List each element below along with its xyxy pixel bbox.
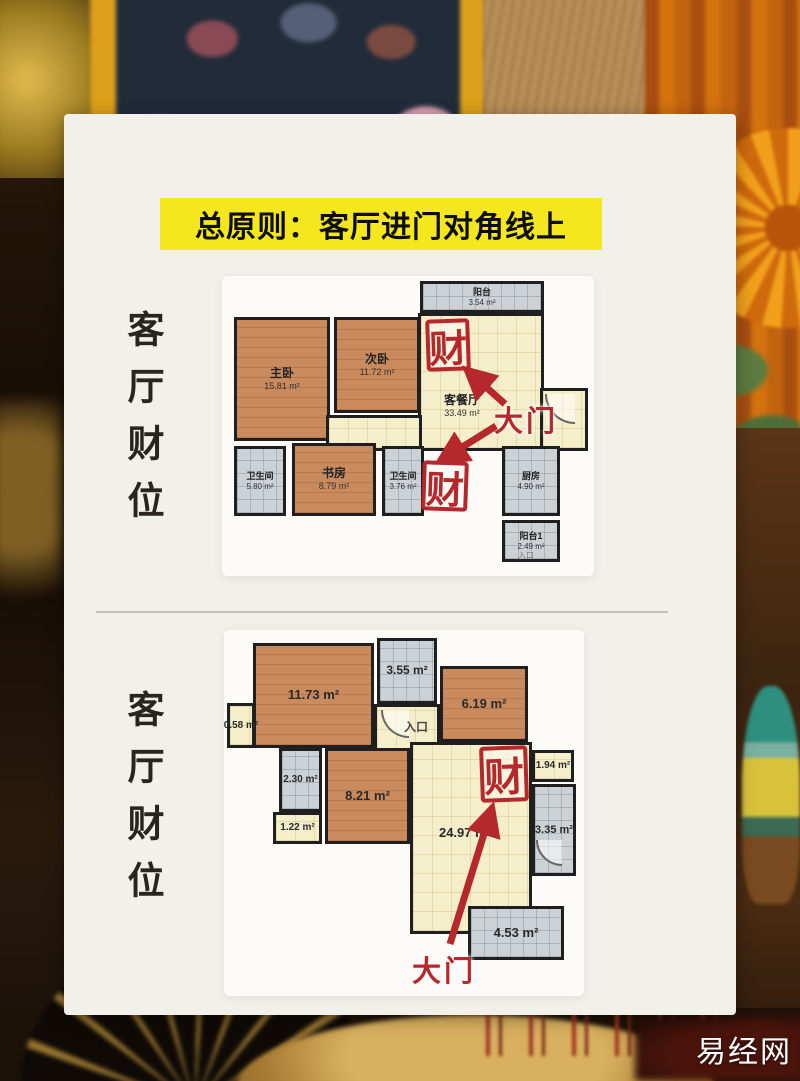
room-area: 1.22 m²	[280, 822, 314, 834]
room-bathroom-mid: 2.30 m²	[279, 748, 322, 812]
room-bedroom-3: 8.21 m²	[325, 748, 410, 844]
site-watermark: 易经网	[696, 1027, 792, 1071]
side-label-bottom: 客厅财位	[112, 690, 174, 980]
section-divider	[96, 611, 668, 613]
room-label: 卫生间	[389, 471, 416, 481]
wealth-stamp: 财	[425, 318, 471, 372]
room-area: 33.49 m²	[444, 408, 480, 418]
room-label: 次卧	[365, 353, 389, 367]
room-kitchen: 厨房 4.90 m²	[502, 446, 560, 516]
room-area: 4.53 m²	[494, 926, 539, 941]
room-area: 8.79 m²	[319, 481, 350, 491]
room-balcony-left: 0.58 m²	[227, 703, 255, 748]
room-area: 3.35 m²	[535, 824, 573, 837]
room-area: 4.90 m²	[517, 482, 544, 491]
room-balcony: 阳台 3.54 m²	[420, 281, 544, 313]
room-nook: 1.94 m²	[532, 750, 574, 782]
room-label: 卫生间	[246, 471, 273, 481]
room-second-bedroom: 次卧 11.72 m²	[334, 317, 420, 413]
room-bedroom-2: 6.19 m²	[440, 666, 528, 742]
room-area: 11.73 m²	[288, 688, 339, 703]
entry-label: 入口	[404, 718, 428, 735]
room-balcony-bottom: 4.53 m²	[468, 906, 564, 960]
room-area: 2.30 m²	[283, 774, 317, 786]
main-door-label: 大门	[412, 948, 476, 990]
room-study: 书房 8.79 m²	[292, 443, 376, 516]
floor-plan-2: 11.73 m² 3.55 m² 6.19 m² 0.58 m² 入口 2.30…	[224, 630, 584, 996]
room-label: 主卧	[270, 367, 294, 381]
room-area: 3.76 m²	[389, 482, 416, 491]
room-label: 书房	[322, 467, 346, 481]
room-area: 0.58 m²	[224, 720, 258, 732]
room-label: 阳台1	[519, 531, 542, 541]
room-label: 厨房	[522, 471, 540, 481]
room-master-bedroom: 主卧 15.81 m²	[234, 317, 330, 441]
room-bathroom-1: 卫生间 5.80 m²	[234, 446, 286, 516]
room-area: 3.54 m²	[468, 298, 495, 307]
room-area: 5.80 m²	[246, 482, 273, 491]
room-area: 3.55 m²	[386, 664, 427, 678]
room-area: 1.94 m²	[536, 760, 570, 772]
room-area: 15.81 m²	[264, 381, 300, 391]
bg-porcelain-vase	[742, 686, 800, 904]
room-closet: 1.22 m²	[273, 812, 322, 844]
main-door-label: 大门	[494, 398, 558, 440]
room-area: 11.72 m²	[360, 367, 395, 377]
room-bathroom-top: 3.55 m²	[377, 638, 437, 704]
entry-label-small: 入口	[518, 550, 534, 561]
living-2-label: 24.97 m²	[430, 826, 500, 841]
page-title: 总原则：客厅进门对角线上	[160, 198, 602, 250]
room-area: 6.19 m²	[462, 697, 507, 712]
living-room-label: 客餐厅 33.49 m²	[420, 394, 504, 418]
room-label: 客餐厅	[444, 394, 480, 408]
room-bathroom-2: 卫生间 3.76 m²	[382, 446, 424, 516]
wealth-stamp: 财	[421, 460, 469, 512]
room-area: 24.97 m²	[439, 826, 491, 841]
room-area: 8.21 m²	[345, 789, 390, 804]
floor-plan-1: 阳台 3.54 m² 主卧 15.81 m² 次卧 11.72 m² 客餐厅 3…	[222, 276, 594, 576]
room-bedroom-1: 11.73 m²	[253, 643, 374, 748]
side-label-top: 客厅财位	[112, 310, 174, 600]
bg-gold-glow	[0, 400, 62, 630]
room-label: 阳台	[473, 287, 491, 297]
wealth-stamp: 财	[479, 745, 529, 803]
infographic-card: 总原则：客厅进门对角线上 客厅财位 客厅财位 阳台 3.54 m² 主卧 15.…	[64, 114, 736, 1015]
